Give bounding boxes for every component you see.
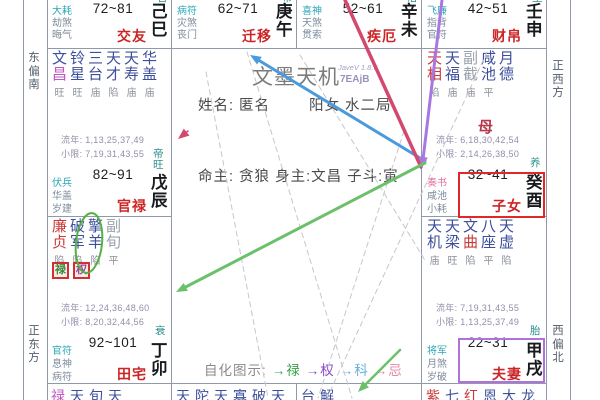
star-partial: 恩 (483, 386, 497, 400)
god-label: 岁建 (52, 204, 72, 215)
god-label: 丧门 (177, 30, 197, 41)
master-stars-line: 命主: 贪狼 身主:文昌 子斗:寅 (198, 165, 399, 186)
daxian-range: 92~101 (85, 335, 141, 350)
ganzhi-label: 癸酉 (526, 175, 543, 210)
god-label: 小耗 (427, 204, 447, 215)
changsheng-label: 胎 (530, 326, 541, 337)
partial-palace-col1: 天陀天寡破天 (172, 383, 297, 400)
daxian-range: 52~61 (335, 1, 391, 16)
liunian-years: 流年: 12,24,36,48,60 (61, 301, 149, 314)
changsheng-label-partial: 官 (157, 0, 168, 4)
ganzhi-label: 己巳 (151, 4, 168, 39)
god-label: 喜神 (302, 6, 322, 17)
xiaoxian-years: 小限: 8,20,32,44,56 (61, 315, 144, 328)
partial-palace-col0: 禄天旬天 (47, 383, 172, 400)
star-文曲: 文曲陷 (462, 219, 479, 267)
liunian-years: 流年: 7,19,31,43,55 (436, 301, 519, 314)
star-partial: 红 (464, 386, 478, 400)
xiaoxian-years: 小限: 7,19,31,43,55 (61, 147, 144, 160)
star-partial: 陀 (195, 386, 209, 400)
god-label: 华盖 (52, 191, 72, 202)
star-天机: 天机庙 (426, 219, 443, 267)
palace-cell-交友[interactable]: 大耗劫煞晦气72~81交友己巳官 (47, 0, 172, 48)
palace-cell-子女[interactable]: 奏书咸池小耗32~41子女癸酉养天相陷天福庙副截庙咸池平月德母流年: 6,18,… (422, 48, 547, 216)
star-华盖: 华盖庙 (141, 51, 158, 99)
star-廉贞: 廉贞陷 (51, 219, 68, 267)
star-partial: 天 (176, 386, 190, 400)
god-label: 病符 (52, 372, 72, 383)
daxian-range: 62~71 (210, 1, 266, 16)
star-partial: 旬 (89, 386, 103, 400)
palace-name: 迁移 (242, 26, 272, 46)
star-partial: 破 (252, 386, 266, 400)
ganzhi-label: 辛未 (401, 4, 418, 39)
ganzhi-label: 庚午 (276, 4, 293, 39)
god-label: 官符 (427, 30, 447, 41)
god-label: 伏兵 (52, 178, 72, 189)
star-partial: 大 (502, 386, 516, 400)
birth-hua-tags: 禄权 (52, 262, 90, 279)
partial-palace-col3: 紫七红恩大龙 (422, 383, 547, 400)
legend-item-1: →权 (306, 363, 335, 378)
star-partial: 天 (214, 386, 228, 400)
god-label: 月煞 (427, 359, 447, 370)
star-副旬: 副旬平 (105, 219, 122, 267)
star-破军: 破军陷 (69, 219, 86, 267)
god-label: 病符 (177, 6, 197, 17)
god-label: 息神 (52, 359, 72, 370)
palace-cell-财帛[interactable]: 飞廉指背官符42~51财帛壬申生 (422, 0, 547, 48)
star-partial: 寡 (233, 386, 247, 400)
ganzhi-label: 甲戌 (526, 343, 543, 378)
palace-name: 交友 (117, 26, 147, 46)
star-擎羊: 擎羊陷 (87, 219, 104, 267)
star-partial: 天 (271, 386, 285, 400)
palace-cell-田宅[interactable]: 官符息神病符92~101田宅丁卯衰廉贞陷破军陷擎羊陷副旬平禄权流年: 12,24… (47, 216, 172, 383)
star-天寿: 天寿庙 (123, 51, 140, 99)
god-label: 奏书 (427, 178, 447, 189)
legend-title: 自化图示: (204, 363, 267, 378)
god-label: 岁破 (427, 372, 447, 383)
ganzhi-label: 丁卯 (151, 343, 168, 378)
gender-bureau-line: 阳女 水二局 (309, 94, 392, 115)
changsheng-label: 衰 (155, 326, 166, 337)
daxian-range: 42~51 (460, 1, 516, 16)
star-八座: 八座平 (480, 219, 497, 267)
daxian-range: 72~81 (85, 1, 141, 16)
changsheng-label-partial: 生 (532, 0, 543, 4)
daxian-range: 32~41 (460, 167, 516, 182)
god-label: 晦气 (52, 30, 72, 41)
changsheng-label-partial: 浴 (407, 0, 418, 4)
daxian-range: 22~31 (460, 335, 516, 350)
app-version-code: 7EAjB (340, 74, 369, 85)
liunian-years: 流年: 6,18,30,42,54 (436, 133, 519, 146)
palace-cell-疾厄[interactable]: 喜神天煞贯索52~61疾厄辛未浴 (297, 0, 422, 48)
god-label: 将军 (427, 346, 447, 357)
ziwei-chart-app: { "app": { "title": "文墨天机", "version_sma… (0, 0, 600, 400)
star-铃星: 铃星旺 (69, 51, 86, 99)
liunian-years: 流年: 1,13,25,37,49 (61, 133, 144, 146)
palace-name: 疾厄 (367, 26, 397, 46)
direction-label-west-north: 西偏北 (551, 325, 565, 366)
palace-name: 子女 (492, 196, 522, 216)
god-label: 咸池 (427, 191, 447, 202)
direction-label-east-south: 东偏南 (27, 52, 41, 93)
self-hua-legend: 自化图示:→禄→权→科→忌 (204, 359, 403, 379)
xiaoxian-years: 小限: 1,13,25,37,49 (436, 315, 519, 328)
god-label: 指背 (427, 18, 447, 29)
star-天福: 天福庙 (444, 51, 461, 99)
star-天相: 天相陷 (426, 51, 443, 99)
partial-palace-col2: 台解 (297, 383, 422, 400)
legend-item-2: →科 (340, 363, 369, 378)
star-partial: 紫 (426, 386, 440, 400)
star-天才: 天才陷 (105, 51, 122, 99)
palace-cell-夫妻[interactable]: 将军月煞岁破22~31夫妻甲戌胎天机庙天梁旺文曲陷八座平天虚陷流年: 7,19,… (422, 216, 547, 383)
direction-label-east: 正东方 (27, 325, 41, 366)
god-label: 灾煞 (177, 18, 197, 29)
god-label: 天煞 (302, 18, 322, 29)
name-line: 姓名: 匿名 (198, 94, 270, 115)
palace-cell-迁移[interactable]: 病符灾煞丧门62~71迁移庚午带 (172, 0, 297, 48)
xiaoxian-years: 小限: 2,14,26,38,50 (436, 147, 519, 160)
god-label: 劫煞 (52, 18, 72, 29)
star-副截: 副截庙 (462, 51, 479, 99)
star-三台: 三台庙 (87, 51, 104, 99)
palace-name: 官禄 (117, 196, 147, 216)
star-partial: 龙 (521, 386, 535, 400)
god-label: 大耗 (52, 6, 72, 17)
star-咸池: 咸池平 (480, 51, 497, 99)
star-文昌: 文昌旺 (51, 51, 68, 99)
ganzhi-label: 壬申 (526, 4, 543, 39)
app-title: 文墨天机 (252, 61, 340, 91)
legend-item-3: →忌 (374, 363, 403, 378)
star-partial: 解 (320, 386, 334, 400)
ganzhi-label: 戊辰 (151, 175, 168, 210)
changsheng-label: 养 (530, 158, 541, 169)
star-天虚: 天虚陷 (498, 219, 515, 267)
god-label: 贯索 (302, 30, 322, 41)
center-panel: 文墨天机 JaveV 1.8.6 7EAjB 姓名: 匿名 阳女 水二局 命主:… (172, 48, 422, 383)
star-天梁: 天梁旺 (444, 219, 461, 267)
changsheng-label-partial: 带 (282, 0, 293, 4)
palace-name: 夫妻 (492, 364, 522, 383)
legend-item-0: →禄 (272, 363, 301, 378)
god-label: 官符 (52, 346, 72, 357)
star-月德: 月德 (498, 51, 515, 82)
app-version: JaveV 1.8.6 (338, 63, 378, 72)
star-partial: 天 (108, 386, 122, 400)
palace-name: 财帛 (492, 26, 522, 46)
daxian-range: 82~91 (85, 167, 141, 182)
star-partial: 禄 (51, 386, 65, 400)
changsheng-label: 帝旺 (153, 149, 164, 171)
direction-label-west: 正西方 (551, 60, 565, 101)
star-partial: 七 (445, 386, 459, 400)
star-partial: 天 (70, 386, 84, 400)
god-label: 飞廉 (427, 6, 447, 17)
palace-name: 田宅 (117, 364, 147, 383)
star-partial: 台 (301, 386, 315, 400)
palace-cell-官禄[interactable]: 伏兵华盖岁建82~91官禄戊辰帝旺文昌旺铃星旺三台庙天才陷天寿庙华盖庙流年: 1… (47, 48, 172, 216)
